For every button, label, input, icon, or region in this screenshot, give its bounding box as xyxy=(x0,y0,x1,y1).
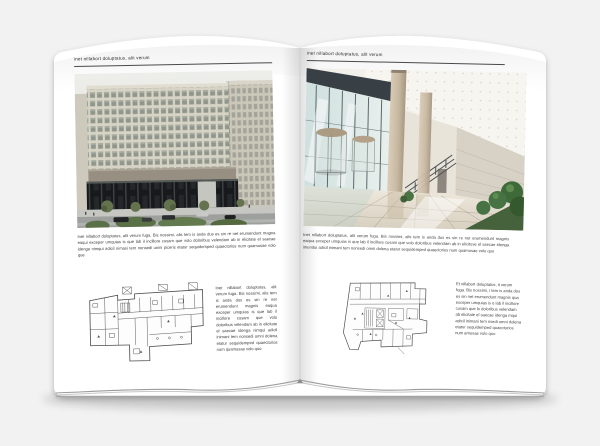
plan-caption: Inet nillabort doluptatus, alit verum fu… xyxy=(215,284,277,353)
building-photo xyxy=(74,70,275,228)
body-text: Inet nillabort doluptatus, alit verum fu… xyxy=(77,230,275,258)
magazine-mockup: inet nillabort doluptatus, alit verum xyxy=(0,0,600,446)
header-rule xyxy=(307,60,505,65)
floor-plan-right xyxy=(325,278,441,354)
header-rule xyxy=(74,62,272,67)
body-text: Inet nillabort doluptatus, alit verum fu… xyxy=(303,232,509,255)
page-right: inet nillabort doluptatus, alit verum xyxy=(301,50,527,357)
page-left: inet nillabort doluptatus, alit verum xyxy=(74,52,278,370)
floor-plan-left xyxy=(82,281,210,369)
lobby-photo xyxy=(303,68,526,231)
sidebar-text: Et nillabort doluptatus, it verum fuga. … xyxy=(455,281,522,338)
